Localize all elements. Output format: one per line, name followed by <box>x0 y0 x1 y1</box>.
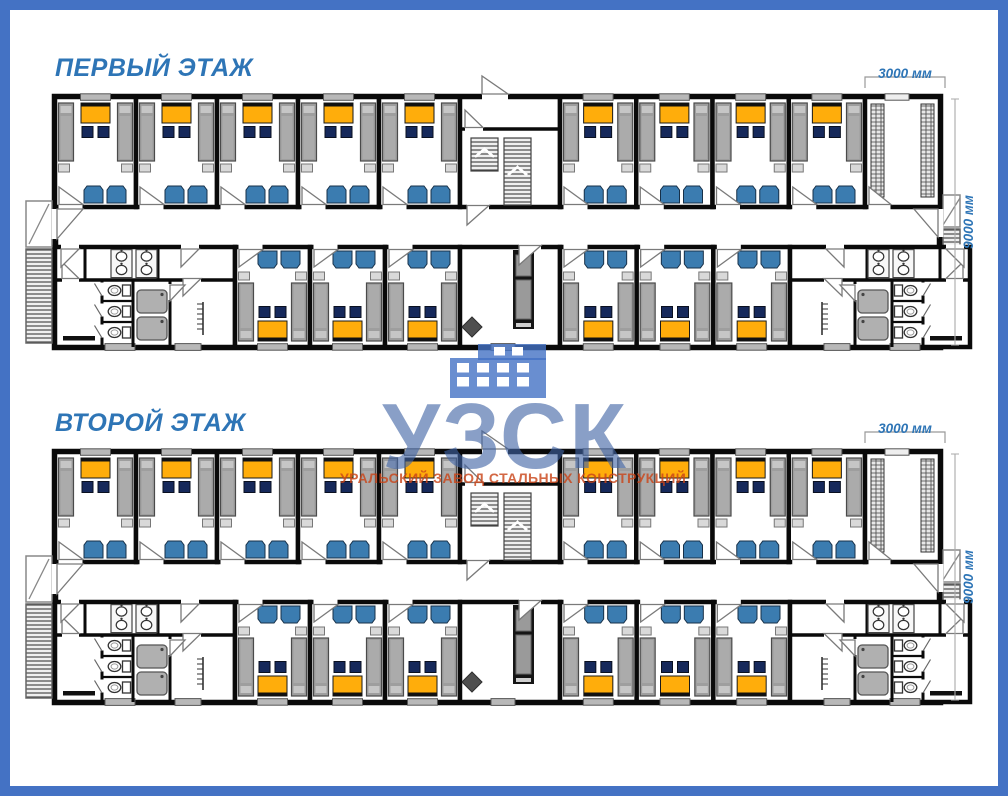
bed-icon <box>564 458 579 516</box>
window-icon <box>324 449 354 456</box>
nightstand-icon <box>776 272 787 280</box>
guest-room <box>379 94 460 211</box>
chair-icon <box>662 662 673 673</box>
chair-icon <box>425 662 436 673</box>
desk-icon <box>162 103 191 123</box>
bed-icon <box>292 283 307 341</box>
wardrobe-icon <box>431 606 450 623</box>
bed-icon <box>694 103 709 161</box>
chair-icon <box>244 127 255 138</box>
guest-room <box>217 94 298 211</box>
bed-icon <box>772 638 787 696</box>
rack-icon <box>871 459 884 552</box>
wardrobe-icon <box>327 186 346 203</box>
nightstand-icon <box>314 627 325 635</box>
bed-icon <box>564 638 579 696</box>
nightstand-icon <box>371 272 382 280</box>
wardrobe-icon <box>107 186 126 203</box>
window-icon <box>736 94 766 101</box>
guest-room <box>235 599 310 706</box>
bed-icon <box>716 103 731 161</box>
chair-icon <box>422 482 433 493</box>
wardrobe-icon <box>684 606 703 623</box>
bed-icon <box>118 103 133 161</box>
shower-icon <box>858 672 888 695</box>
bed-icon <box>618 638 633 696</box>
nightstand-icon <box>717 627 728 635</box>
wardrobe-icon <box>165 186 184 203</box>
desk-icon <box>243 103 272 123</box>
wardrobe-icon <box>607 186 626 203</box>
desk-icon <box>736 103 765 123</box>
toilet-icon <box>895 327 917 338</box>
window-icon <box>408 344 438 351</box>
toilet-icon <box>895 682 917 693</box>
chair-icon <box>244 482 255 493</box>
chair-icon <box>754 307 765 318</box>
window-icon <box>162 94 192 101</box>
guest-room <box>560 94 636 211</box>
nightstand-icon <box>699 272 710 280</box>
guest-room <box>136 94 217 211</box>
wardrobe-icon <box>258 606 277 623</box>
chair-icon <box>829 482 840 493</box>
drying-room <box>865 94 940 211</box>
wardrobe-icon <box>281 606 300 623</box>
wardrobe-icon <box>165 541 184 558</box>
window-icon <box>81 94 111 101</box>
desk-icon <box>737 321 766 341</box>
sink-icon <box>898 265 909 274</box>
wardrobe-icon <box>107 541 126 558</box>
chair-icon <box>813 482 824 493</box>
sanitary-block <box>790 599 970 705</box>
nightstand-icon <box>314 272 325 280</box>
chair-icon <box>260 482 271 493</box>
desk-icon <box>660 458 689 478</box>
floor-plan-svg <box>19 416 1004 711</box>
window-glyph <box>457 363 469 373</box>
nightstand-icon <box>622 519 633 527</box>
nightstand-icon <box>389 627 400 635</box>
nightstand-icon <box>640 519 651 527</box>
nightstand-icon <box>296 627 307 635</box>
nightstand-icon <box>640 627 651 635</box>
nightstand-icon <box>284 519 295 527</box>
wardrobe-icon <box>684 541 703 558</box>
bed-icon <box>367 283 382 341</box>
wardrobe-icon <box>836 541 855 558</box>
wardrobe-icon <box>836 186 855 203</box>
nightstand-icon <box>640 272 651 280</box>
window-icon <box>333 344 363 351</box>
guest-room <box>636 449 712 566</box>
bed-icon <box>442 638 457 696</box>
bed-icon <box>717 638 732 696</box>
shower-icon <box>137 290 167 313</box>
nightstand-icon <box>851 164 862 172</box>
chair-icon <box>406 482 417 493</box>
window-glyph <box>517 363 529 373</box>
window-icon <box>175 699 201 706</box>
chair-icon <box>98 482 109 493</box>
window-icon <box>81 449 111 456</box>
nightstand-icon <box>776 627 787 635</box>
nightstand-icon <box>371 627 382 635</box>
desk-icon <box>737 676 766 696</box>
wardrobe-icon <box>737 541 756 558</box>
guest-room <box>310 244 385 351</box>
nightstand-icon <box>564 272 575 280</box>
chair-icon <box>753 127 764 138</box>
desk-icon <box>584 458 613 478</box>
bed-icon <box>140 458 155 516</box>
guest-room <box>789 449 865 566</box>
chair-icon <box>585 307 596 318</box>
guest-room <box>636 94 712 211</box>
sink-icon <box>898 607 909 616</box>
bed-icon <box>442 283 457 341</box>
bed-icon <box>772 283 787 341</box>
wardrobe-icon <box>431 541 450 558</box>
toilet-icon <box>108 661 130 672</box>
window-icon <box>583 699 613 706</box>
desk-icon <box>584 103 613 123</box>
bed-icon <box>383 103 398 161</box>
window-icon <box>105 699 135 706</box>
window-glyph <box>477 363 489 373</box>
bed-icon <box>280 103 295 161</box>
chair-icon <box>350 662 361 673</box>
sink-icon <box>141 265 152 274</box>
window-icon <box>583 94 613 101</box>
nightstand-icon <box>564 164 575 172</box>
chair-icon <box>738 307 749 318</box>
guest-room <box>789 94 865 211</box>
drying-room <box>865 449 940 566</box>
chair-icon <box>275 307 286 318</box>
window-icon <box>659 449 689 456</box>
chair-icon <box>163 127 174 138</box>
shower-icon <box>858 290 888 313</box>
bed-icon <box>292 638 307 696</box>
guest-room <box>560 244 637 351</box>
chair-icon <box>601 127 612 138</box>
bed-icon <box>618 458 633 516</box>
chair-icon <box>179 127 190 138</box>
chair-icon <box>754 662 765 673</box>
floor-title-second: ВТОРОЙ ЭТАЖ <box>55 409 246 438</box>
window-icon <box>324 94 354 101</box>
window-icon <box>737 344 767 351</box>
sink-icon <box>873 265 884 274</box>
nightstand-icon <box>622 627 633 635</box>
wardrobe-icon <box>585 251 604 268</box>
wardrobe-icon <box>246 541 265 558</box>
desk-icon <box>812 103 841 123</box>
chair-icon <box>259 307 270 318</box>
stairs-icon <box>471 138 498 171</box>
nightstand-icon <box>622 164 633 172</box>
bench-icon <box>930 691 962 696</box>
wardrobe-icon <box>408 606 427 623</box>
wardrobe-icon <box>333 606 352 623</box>
wardrobe-icon <box>408 251 427 268</box>
chair-icon <box>661 482 672 493</box>
chair-icon <box>678 662 689 673</box>
chair-icon <box>738 662 749 673</box>
bed-icon <box>367 638 382 696</box>
desk-icon <box>162 458 191 478</box>
bed-icon <box>770 458 785 516</box>
shower-icon <box>858 317 888 340</box>
wardrobe-icon <box>333 251 352 268</box>
nightstand-icon <box>716 164 727 172</box>
chair-icon <box>179 482 190 493</box>
bed-icon <box>695 283 710 341</box>
sink-icon <box>873 620 884 629</box>
guest-room <box>385 599 460 706</box>
nightstand-icon <box>140 164 151 172</box>
desk-icon <box>736 458 765 478</box>
wardrobe-icon <box>327 541 346 558</box>
bed-icon <box>221 458 236 516</box>
chair-icon <box>82 482 93 493</box>
wardrobe-icon <box>269 541 288 558</box>
wardrobe-icon <box>738 251 757 268</box>
window-icon <box>105 344 135 351</box>
toilet-icon <box>895 285 917 296</box>
nightstand-icon <box>698 164 709 172</box>
nightstand-icon <box>221 519 232 527</box>
guest-room <box>235 244 310 351</box>
window-icon <box>812 449 842 456</box>
nightstand-icon <box>564 627 575 635</box>
window-icon <box>737 699 767 706</box>
window-icon <box>405 449 435 456</box>
bed-icon <box>694 458 709 516</box>
nightstand-icon <box>564 519 575 527</box>
nightstand-icon <box>296 272 307 280</box>
floor-plan-second <box>19 416 1004 711</box>
toilet-icon <box>895 640 917 651</box>
bed-icon <box>302 103 317 161</box>
guest-room <box>379 449 460 566</box>
window-icon <box>736 449 766 456</box>
wardrobe-icon <box>661 251 680 268</box>
nightstand-icon <box>59 519 70 527</box>
guest-room <box>713 94 789 211</box>
bed-icon <box>280 458 295 516</box>
wardrobe-icon <box>408 186 427 203</box>
nightstand-icon <box>446 164 457 172</box>
toilet-icon <box>108 682 130 693</box>
nightstand-icon <box>365 164 376 172</box>
bed-icon <box>314 283 329 341</box>
sink-icon <box>898 620 909 629</box>
chair-icon <box>422 127 433 138</box>
sink-icon <box>873 607 884 616</box>
window-icon <box>885 94 909 100</box>
wardrobe-icon <box>684 251 703 268</box>
chair-icon <box>601 307 612 318</box>
nightstand-icon <box>622 272 633 280</box>
entrance-stair-block <box>460 76 560 225</box>
bed-icon <box>847 458 862 516</box>
nightstand-icon <box>774 164 785 172</box>
desk-icon <box>584 321 613 341</box>
entry-door-swing-icon <box>482 431 508 449</box>
bench-icon <box>63 336 95 341</box>
wardrobe-icon <box>281 251 300 268</box>
bed-icon <box>199 103 214 161</box>
sink-icon <box>141 620 152 629</box>
window-icon <box>660 699 690 706</box>
bed-icon <box>618 283 633 341</box>
nightstand-icon <box>716 519 727 527</box>
window-glyph <box>497 377 509 387</box>
desk-icon <box>324 103 353 123</box>
chair-icon <box>325 482 336 493</box>
bed-icon <box>302 458 317 516</box>
wardrobe-icon <box>761 606 780 623</box>
window-icon <box>583 344 613 351</box>
guest-room <box>560 599 637 706</box>
wardrobe-icon <box>760 541 779 558</box>
wardrobe-icon <box>350 186 369 203</box>
chair-icon <box>601 482 612 493</box>
nightstand-icon <box>389 272 400 280</box>
chair-icon <box>753 482 764 493</box>
nightstand-icon <box>365 519 376 527</box>
nightstand-icon <box>446 519 457 527</box>
wardrobe-icon <box>431 186 450 203</box>
window-icon <box>660 344 690 351</box>
chair-icon <box>259 662 270 673</box>
wardrobe-icon <box>684 186 703 203</box>
chair-icon <box>585 662 596 673</box>
stairs-icon <box>471 493 498 526</box>
bed-icon <box>847 103 862 161</box>
nightstand-icon <box>383 519 394 527</box>
nightstand-icon <box>140 519 151 527</box>
chair-icon <box>98 127 109 138</box>
wardrobe-icon <box>269 186 288 203</box>
desk-icon <box>243 458 272 478</box>
nightstand-icon <box>203 164 214 172</box>
chair-icon <box>601 662 612 673</box>
window-icon <box>243 449 273 456</box>
exterior-stairs-left <box>26 201 52 343</box>
wardrobe-icon <box>761 251 780 268</box>
desk-icon <box>333 676 362 696</box>
toilet-icon <box>108 306 130 317</box>
bench-icon <box>63 691 95 696</box>
wardrobe-icon <box>661 186 680 203</box>
guest-room <box>713 449 789 566</box>
sink-icon <box>116 607 127 616</box>
guest-room <box>136 449 217 566</box>
floor-plan-svg <box>19 61 1004 356</box>
desk-icon <box>405 103 434 123</box>
brochure-page: ПЕРВЫЙ ЭТАЖ 3000 мм 9000 мм ВТОРОЙ ЭТАЖ … <box>0 0 1008 796</box>
wardrobe-icon <box>356 606 375 623</box>
bed-icon <box>239 638 254 696</box>
window-icon <box>258 699 288 706</box>
wardrobe-icon <box>408 541 427 558</box>
nightstand-icon <box>446 627 457 635</box>
window-icon <box>333 699 363 706</box>
chair-icon <box>737 127 748 138</box>
desk-icon <box>258 321 287 341</box>
guest-room <box>637 599 714 706</box>
bed-icon <box>442 458 457 516</box>
bed-icon <box>140 103 155 161</box>
wardrobe-icon <box>584 541 603 558</box>
window-icon <box>890 344 920 351</box>
wardrobe-icon <box>813 541 832 558</box>
bed-icon <box>640 283 655 341</box>
chair-icon <box>82 127 93 138</box>
wardrobe-icon <box>584 186 603 203</box>
window-icon <box>162 449 192 456</box>
sanitary-block <box>790 244 970 350</box>
toilet-icon <box>108 327 130 338</box>
sink-icon <box>898 252 909 261</box>
wardrobe-icon <box>188 186 207 203</box>
window-icon <box>824 344 850 351</box>
guest-room <box>217 449 298 566</box>
window-icon <box>824 699 850 706</box>
chair-icon <box>275 662 286 673</box>
bed-icon <box>564 103 579 161</box>
desk-icon <box>324 458 353 478</box>
nightstand-icon <box>239 627 250 635</box>
nightstand-icon <box>446 272 457 280</box>
sink-icon <box>116 252 127 261</box>
dimension-label-module-width-first: 3000 мм <box>855 66 955 81</box>
chair-icon <box>409 662 420 673</box>
nightstand-icon <box>221 164 232 172</box>
dimension-label-depth-second: 9000 мм <box>961 502 976 652</box>
window-icon <box>583 449 613 456</box>
guest-room <box>385 244 460 351</box>
desk-icon <box>405 458 434 478</box>
wardrobe-icon <box>585 606 604 623</box>
window-glyph <box>497 363 509 373</box>
sink-icon <box>873 252 884 261</box>
bed-icon <box>640 103 655 161</box>
window-icon <box>175 344 201 351</box>
chair-icon <box>813 127 824 138</box>
window-icon <box>258 344 288 351</box>
toilet-icon <box>108 640 130 651</box>
wardrobe-icon <box>607 541 626 558</box>
nightstand-icon <box>122 519 133 527</box>
bed-icon <box>695 638 710 696</box>
wardrobe-icon <box>356 251 375 268</box>
toilet-icon <box>108 285 130 296</box>
nightstand-icon <box>122 164 133 172</box>
wardrobe-icon <box>608 251 627 268</box>
desk-icon <box>661 321 690 341</box>
nightstand-icon <box>59 164 70 172</box>
rack-icon <box>921 459 934 552</box>
nightstand-icon <box>774 519 785 527</box>
chair-icon <box>662 307 673 318</box>
window-icon <box>408 699 438 706</box>
guest-room <box>55 94 136 211</box>
